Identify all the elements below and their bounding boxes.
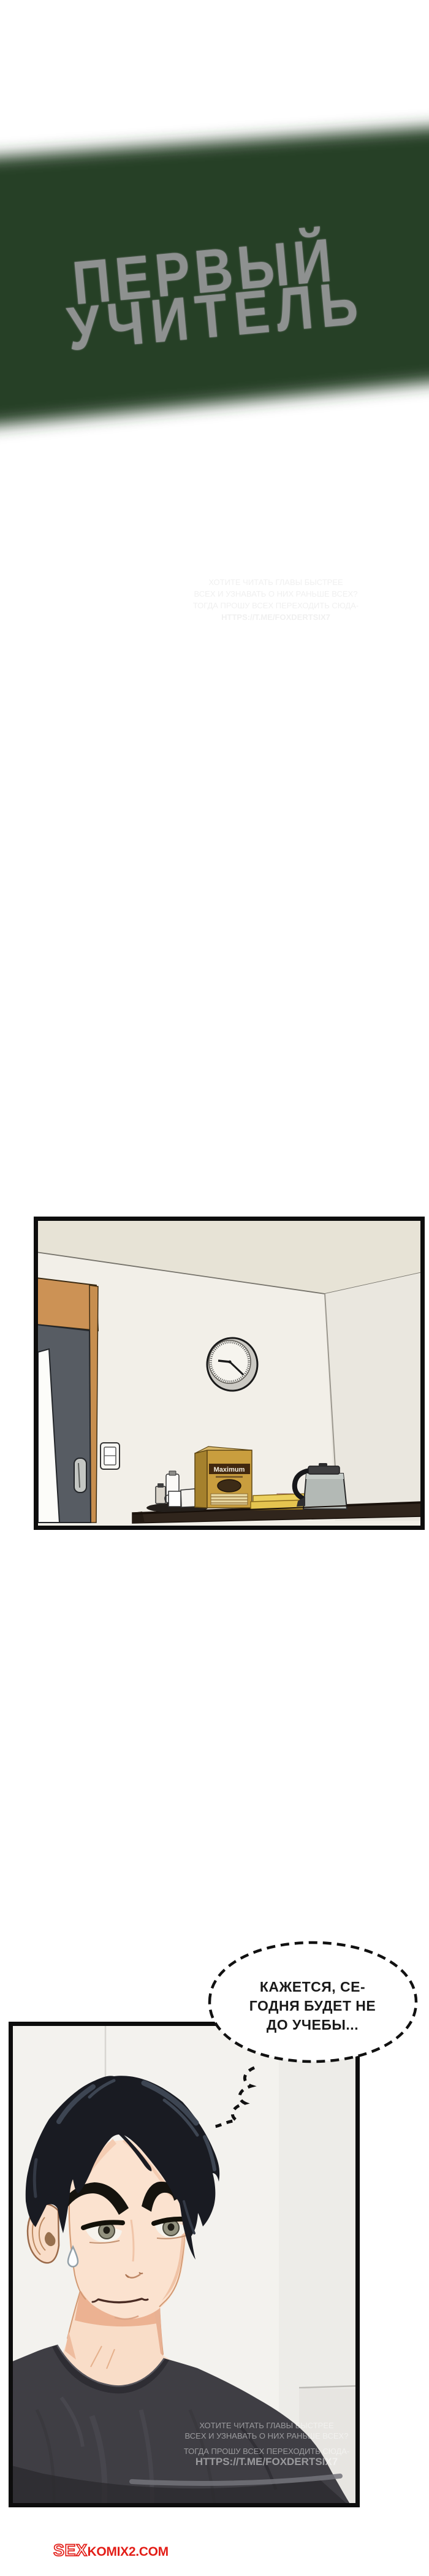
svg-text:Maximum: Maximum (214, 1466, 245, 1473)
